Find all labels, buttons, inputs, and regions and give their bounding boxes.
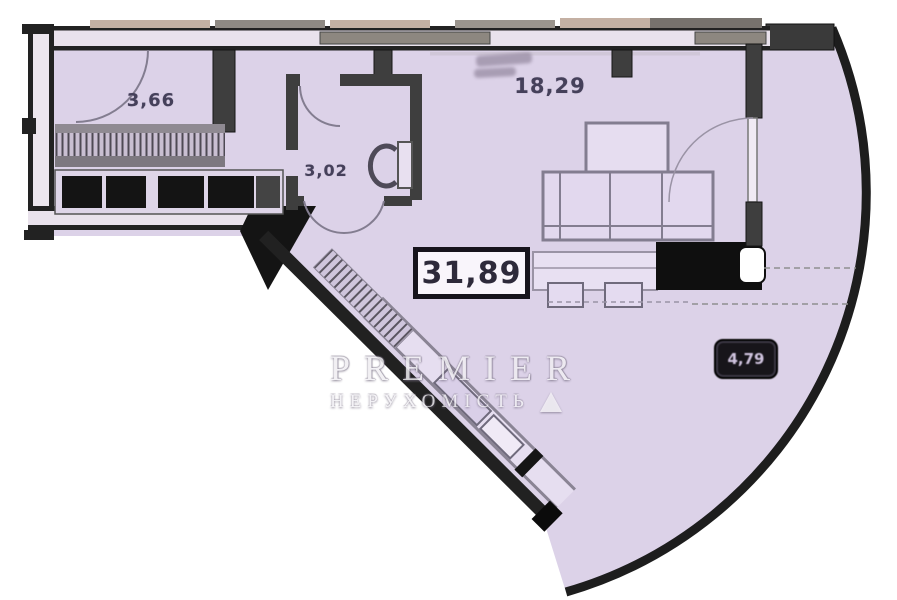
- top-wall: [33, 18, 770, 56]
- bed-headboard: [586, 123, 668, 173]
- kitchen-appliances: [55, 170, 283, 214]
- wardrobe-notch: [739, 247, 765, 283]
- balcony-area-badge: 4,79: [714, 339, 778, 379]
- total-area-label: 31,89: [422, 256, 522, 291]
- main-room-area-label: 18,29: [498, 74, 602, 98]
- floor-area: [33, 28, 866, 592]
- sill-line-inner: [430, 52, 700, 56]
- hall-area-label: 3,66: [116, 90, 186, 111]
- top-right-wall-cap: [766, 24, 834, 50]
- nightstand-2: [605, 283, 642, 307]
- bed-frame: [543, 172, 713, 240]
- pier-small-right: [612, 50, 632, 77]
- bathroom-area-label: 3,02: [296, 161, 356, 180]
- total-area-box: 31,89: [413, 247, 530, 299]
- pier-hall-divider: [213, 50, 235, 132]
- kitchen-counter: [55, 124, 225, 167]
- nightstand-1: [548, 283, 583, 307]
- floor-plan: 3,66 18,29 3,02 31,89 4,79 PREMIER НЕРУХ…: [0, 0, 897, 600]
- balcony-area-label: 4,79: [727, 350, 764, 368]
- pier-small-left: [374, 50, 392, 76]
- window-sill-segments: [90, 18, 762, 28]
- door-leaf: [748, 118, 757, 202]
